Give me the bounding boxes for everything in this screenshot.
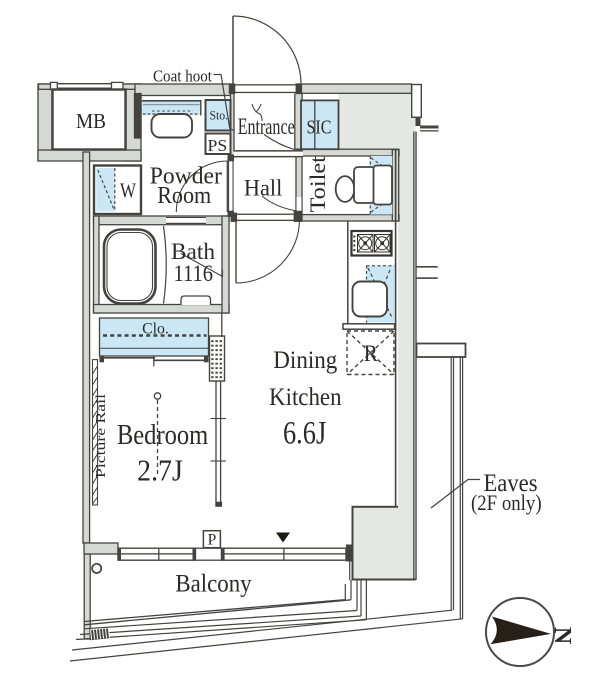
- svg-text:6.6J: 6.6J: [283, 416, 326, 452]
- svg-text:Coat hoot: Coat hoot: [153, 67, 212, 86]
- svg-text:Clo.: Clo.: [142, 321, 169, 338]
- svg-text:Balcony: Balcony: [175, 571, 252, 598]
- svg-text:1116: 1116: [174, 261, 214, 286]
- svg-text:MB: MB: [76, 109, 106, 133]
- svg-text:SIC: SIC: [307, 117, 332, 139]
- svg-text:2.7J: 2.7J: [137, 453, 183, 488]
- svg-text:W: W: [120, 179, 136, 203]
- svg-text:N: N: [549, 627, 575, 645]
- svg-text:Bedroom: Bedroom: [117, 420, 209, 451]
- svg-text:Kitchen: Kitchen: [269, 382, 342, 411]
- svg-text:P: P: [208, 532, 217, 549]
- svg-text:PS: PS: [208, 136, 228, 155]
- svg-text:R: R: [364, 341, 379, 366]
- svg-text:Sto.: Sto.: [209, 109, 228, 123]
- svg-text:Entrance: Entrance: [238, 114, 295, 139]
- svg-text:Toilet: Toilet: [305, 156, 330, 213]
- svg-text:Dining: Dining: [273, 345, 337, 374]
- svg-text:(2F only): (2F only): [471, 490, 542, 515]
- svg-text:Hall: Hall: [244, 176, 282, 201]
- svg-text:Picture Rail: Picture Rail: [94, 394, 109, 478]
- svg-text:Room: Room: [157, 183, 211, 209]
